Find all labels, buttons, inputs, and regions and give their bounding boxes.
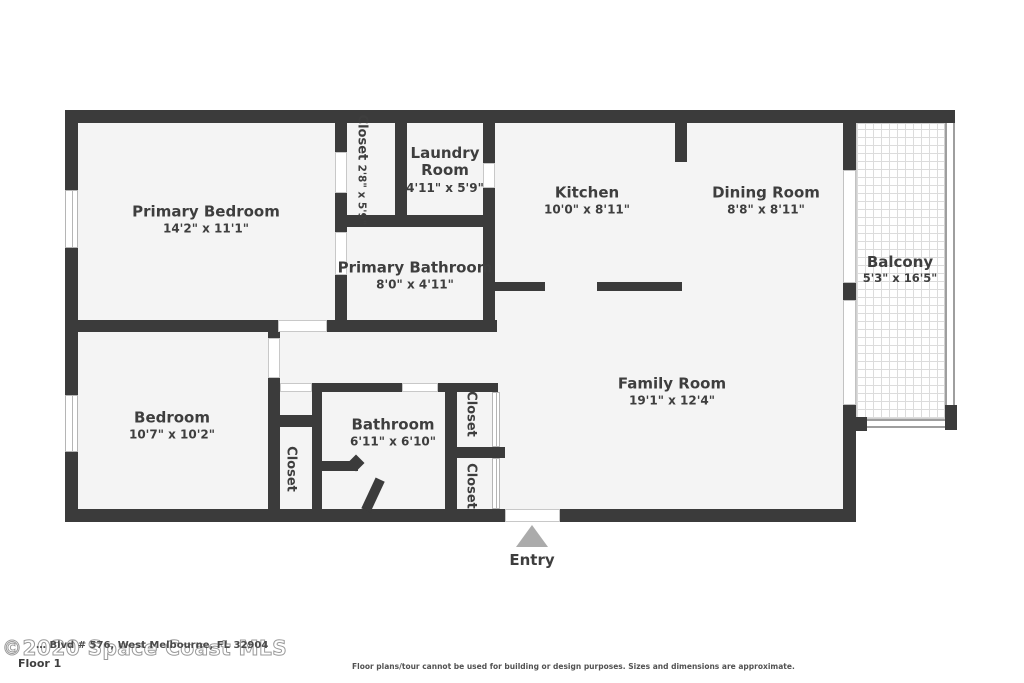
room-dims: 5'3" x 16'5" — [863, 272, 937, 286]
room-dims: 8'0" x 4'11" — [338, 278, 493, 292]
room-name: Kitchen — [544, 185, 630, 202]
room-label-bathroom: Bathroom 6'11" x 6'10" — [350, 417, 436, 450]
room-name: Primary Bathroom — [338, 260, 493, 277]
room-label-kitchen: Kitchen 10'0" x 8'11" — [544, 185, 630, 218]
entry-arrow-icon — [516, 525, 548, 547]
wall — [65, 110, 78, 190]
wall — [335, 123, 347, 152]
wall — [843, 123, 856, 170]
room-name: Closet — [464, 463, 479, 509]
kitchen-counter — [495, 282, 545, 291]
floor-label: Floor 1 — [18, 657, 61, 670]
disclaimer-text: Floor plans/tour cannot be used for buil… — [352, 662, 795, 671]
wall — [65, 320, 278, 332]
wall — [327, 320, 497, 332]
closet-door — [492, 392, 500, 447]
door-opening — [268, 338, 280, 378]
room-label-bedroom: Bedroom 10'7" x 10'2" — [129, 410, 215, 443]
window — [65, 395, 78, 452]
floor-plan: Primary Bedroom 14'2" x 11'1" Closet 2'8… — [0, 0, 1024, 683]
wall — [843, 283, 856, 300]
room-label-family-room: Family Room 19'1" x 12'4" — [618, 376, 726, 409]
room-dims: 4'11" x 5'9" — [399, 181, 491, 195]
room-label-closet-right-top: Closet — [464, 391, 479, 437]
door-opening — [402, 383, 438, 392]
room-label-closet-right-bottom: Closet — [464, 463, 479, 509]
room-name: Closet — [284, 446, 299, 492]
room-dims: 6'11" x 6'10" — [350, 435, 436, 449]
room-name: Laundry Room — [399, 145, 491, 180]
sliding-glass-door — [843, 170, 856, 283]
room-label-dining: Dining Room 8'8" x 8'11" — [712, 185, 820, 218]
sliding-glass-door — [843, 300, 856, 405]
room-name: Dining Room — [712, 185, 820, 202]
room-name: Bedroom — [129, 410, 215, 427]
window — [65, 190, 78, 248]
property-address: … Blvd # 576, West Melbourne, FL 32904 — [36, 640, 268, 651]
room-label-primary-bedroom: Primary Bedroom 14'2" x 11'1" — [132, 204, 280, 237]
wall — [268, 378, 280, 509]
closet-door — [492, 458, 500, 509]
room-dims: 8'8" x 8'11" — [712, 203, 820, 217]
entry-opening — [505, 509, 560, 522]
room-label-closet-top: Closet 2'8" x 5'9" — [355, 115, 370, 226]
balcony-post — [855, 417, 867, 431]
room-label-primary-bathroom: Primary Bathroom 8'0" x 4'11" — [338, 260, 493, 293]
room-name: Primary Bedroom — [132, 204, 280, 221]
wall — [65, 509, 505, 522]
room-name: Family Room — [618, 376, 726, 393]
room-name: Closet — [355, 115, 370, 161]
room-label-laundry: Laundry Room 4'11" x 5'9" — [399, 145, 491, 195]
room-name: Closet — [464, 391, 479, 437]
door-opening — [335, 152, 347, 193]
room-dims: 14'2" x 11'1" — [132, 222, 280, 236]
entry-label: Entry — [509, 551, 554, 569]
room-dims: 10'7" x 10'2" — [129, 428, 215, 442]
wall — [312, 383, 402, 392]
wall — [65, 110, 955, 123]
wall — [445, 447, 505, 458]
wall — [312, 383, 322, 509]
room-name: Bathroom — [350, 417, 436, 434]
room-name: Balcony — [863, 254, 937, 271]
door-opening — [278, 320, 327, 332]
kitchen-counter — [597, 282, 682, 291]
wall — [560, 509, 856, 522]
room-label-closet-hall: Closet — [284, 446, 299, 492]
wall — [445, 383, 457, 509]
balcony-railing-right — [945, 123, 955, 428]
room-label-balcony: Balcony 5'3" x 16'5" — [863, 254, 937, 286]
balcony-railing-bottom — [856, 419, 945, 428]
room-dims: 2'8" x 5'9" — [356, 165, 368, 226]
balcony-post — [945, 405, 957, 430]
room-dims: 19'1" x 12'4" — [618, 394, 726, 408]
wall — [675, 123, 687, 162]
wall — [268, 415, 313, 427]
door-opening — [280, 383, 312, 392]
room-dims: 10'0" x 8'11" — [544, 203, 630, 217]
